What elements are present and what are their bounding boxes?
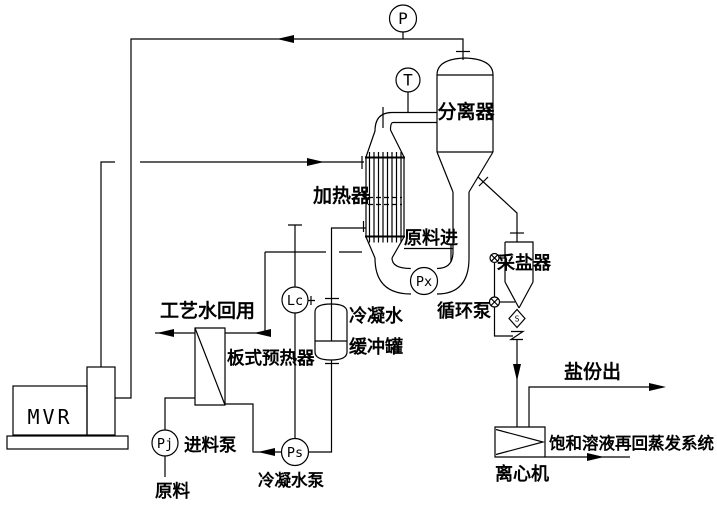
feed-pump-tag: Pj <box>157 436 173 452</box>
condensate-pump: Ps 冷凝水泵 <box>225 404 325 490</box>
salt-out-line: 盐份出 <box>529 360 666 427</box>
flow-arrow-down-icon <box>513 364 521 381</box>
temperature-indicator: T <box>396 68 420 112</box>
flow-arrow-left-icon <box>258 448 275 456</box>
mvr-unit: MVR <box>7 367 128 449</box>
circulation-pump-label: 循环泵 <box>437 300 491 321</box>
plate-preheater-label: 板式预热器 <box>227 348 315 368</box>
vapor-duct <box>366 107 437 157</box>
buffer-tank-label-line2: 缓冲罐 <box>349 336 403 357</box>
condensate-pump-label: 冷凝水泵 <box>258 470 325 490</box>
separator-label: 分离器 <box>437 100 495 123</box>
heater: 加热器 <box>312 152 405 258</box>
feed-pump-label: 进料泵 <box>184 435 237 455</box>
raw-material-label: 原料 <box>155 481 190 501</box>
slurry-line-to-salt-collector <box>478 177 524 242</box>
process-water-reuse-label: 工艺水回用 <box>160 300 255 322</box>
flow-arrow-left-icon <box>254 329 271 337</box>
mvr-label: MVR <box>27 405 72 429</box>
salt-collector-label: 采盐器 <box>496 252 552 273</box>
level-controller: Lc <box>282 225 315 439</box>
centrifuge-label: 离心机 <box>495 463 549 484</box>
mvr-outlet-box <box>87 367 115 435</box>
condensate-system: 冷凝水 缓冲罐 Lc <box>265 221 404 452</box>
bypass-valve-bottom-icon <box>490 297 516 307</box>
pfd-mvr-evaporation-diagram: P T 加热器 Px 循环泵 原料进 <box>0 0 717 509</box>
flow-arrow-left-icon <box>277 35 294 43</box>
circulation-pump-tag: Px <box>416 274 432 290</box>
sight-glass-symbol: S <box>515 315 520 324</box>
feed-pump: Pj 进料泵 原料 <box>152 398 237 501</box>
flow-arrow-right-icon <box>307 158 324 166</box>
saturated-solution-return-label: 饱和溶液再回蒸发系统 <box>549 433 715 453</box>
salt-out-label: 盐份出 <box>564 360 621 383</box>
feed-in-label: 原料进 <box>404 227 458 248</box>
mvr-base <box>7 436 128 449</box>
saturated-solution-return-line: 饱和溶液再回蒸发系统 <box>545 433 715 461</box>
flow-arrow-right-icon <box>587 453 604 461</box>
pressure-tag: P <box>398 9 408 28</box>
diagram-svg: P T 加热器 Px 循环泵 原料进 <box>0 0 717 509</box>
heater-label: 加热器 <box>312 184 371 207</box>
salt-collector: 采盐器 S <box>490 242 552 427</box>
vapor-line-to-mvr <box>115 35 470 398</box>
temperature-tag: T <box>403 71 413 90</box>
pressure-indicator: P <box>390 5 417 39</box>
sight-glass-diamond-icon: S <box>509 310 525 328</box>
centrifuge: 离心机 <box>495 427 549 484</box>
feed-in-line: 原料进 <box>404 227 458 262</box>
flow-arrow-right-icon <box>649 383 666 391</box>
separator: 分离器 <box>437 58 495 192</box>
condensate-pump-tag: Ps <box>287 445 303 461</box>
plate-preheater: 工艺水回用 板式预热器 <box>155 300 315 405</box>
condensate-buffer-tank: 冷凝水 缓冲罐 <box>315 299 404 364</box>
flow-arrow-left-icon <box>157 329 174 337</box>
buffer-tank-label-line1: 冷凝水 <box>349 305 404 326</box>
level-controller-tag: Lc <box>287 293 303 309</box>
